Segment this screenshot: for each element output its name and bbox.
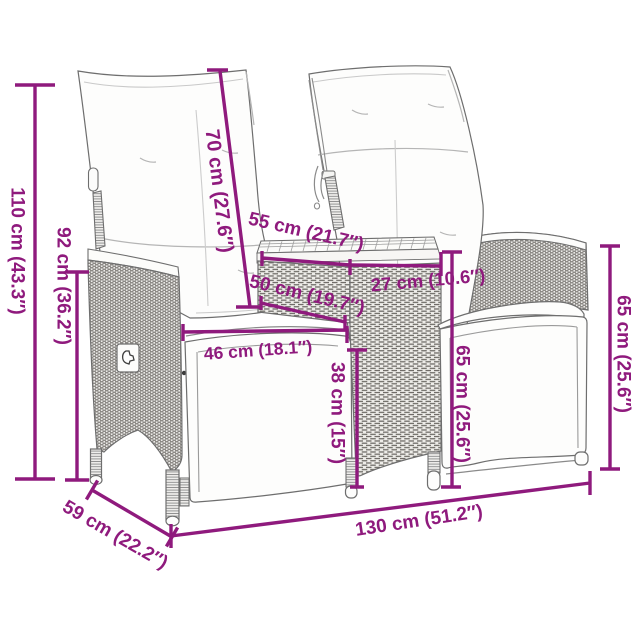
svg-text:92 cm (36.2″): 92 cm (36.2″) (53, 227, 74, 345)
svg-text:38 cm (15″): 38 cm (15″) (327, 362, 348, 464)
svg-text:110 cm (43.3″): 110 cm (43.3″) (7, 187, 28, 314)
svg-text:65 cm (25.6″): 65 cm (25.6″) (613, 295, 634, 413)
svg-text:65 cm (25.6″): 65 cm (25.6″) (452, 345, 473, 463)
